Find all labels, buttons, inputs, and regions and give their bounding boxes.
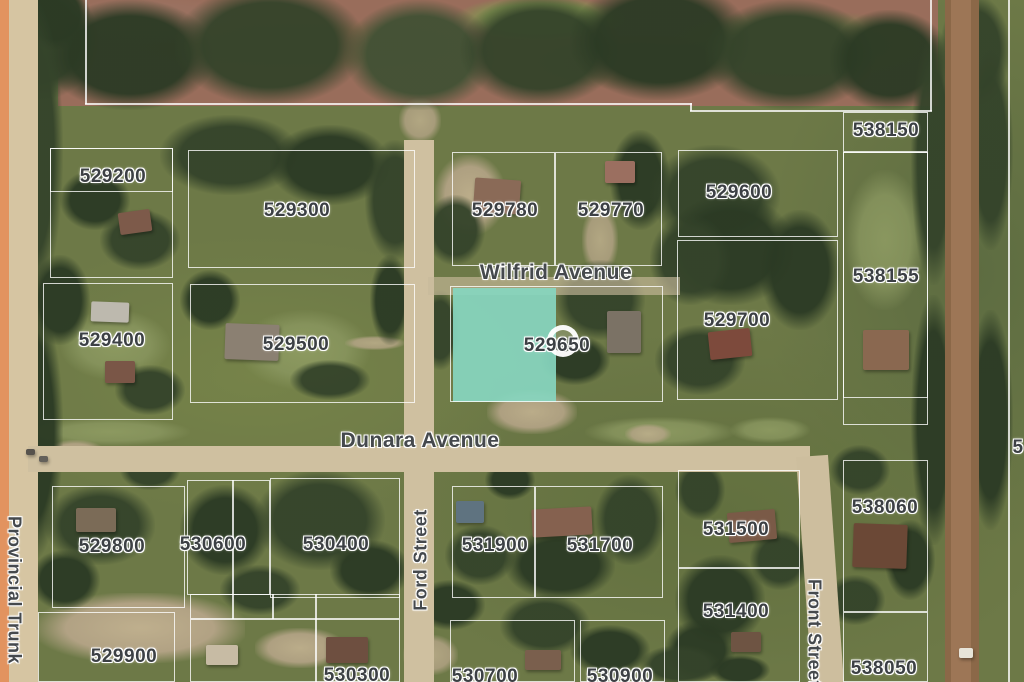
parcel-label[interactable]: 538060 [852, 497, 918, 519]
parcel-label[interactable]: 530300 [324, 665, 390, 682]
parcel-label[interactable]: 538155 [853, 266, 919, 288]
parcel-boundary-line [232, 594, 234, 619]
street-label-front-street: Front Street [804, 579, 825, 682]
building [39, 456, 48, 462]
parcel-label[interactable]: 531400 [703, 601, 769, 623]
parcel-label-selected[interactable]: 529650 [524, 335, 590, 357]
street-label-ford-street: Ford Street [411, 509, 432, 611]
parcel-label[interactable]: 529600 [706, 182, 772, 204]
parcel-label[interactable]: 529900 [91, 646, 157, 668]
street-label-provincial-trunk: Provincial Trunk [4, 516, 25, 664]
parcel-boundary [843, 460, 928, 612]
map-canvas[interactable]: 5292005293005297805297705296005381505381… [0, 0, 1024, 682]
parcel-label[interactable]: 530700 [452, 666, 518, 682]
parcel-boundary-line [85, 103, 692, 105]
building [26, 449, 35, 455]
parcel-boundary [678, 568, 800, 682]
parcel-label[interactable]: 530600 [180, 534, 246, 556]
parcel-label[interactable]: 530900 [587, 666, 653, 682]
parcel-label[interactable]: 529300 [264, 200, 330, 222]
parcel-label[interactable]: 529780 [472, 200, 538, 222]
parcel-boundary-line [1008, 0, 1010, 682]
parcel-boundary [190, 594, 400, 619]
parcel-label-partial[interactable]: 5 [1012, 437, 1023, 459]
parcel-label[interactable]: 529700 [704, 310, 770, 332]
parcel-label[interactable]: 531900 [462, 535, 528, 557]
parcel-label[interactable]: 529200 [80, 166, 146, 188]
parcel-boundary-line [272, 594, 274, 619]
farm-field [58, 0, 938, 106]
parcel-boundary-line [315, 594, 317, 682]
building [959, 648, 973, 658]
road-dirt-east-track [951, 0, 971, 682]
parcel-boundary-line [85, 0, 87, 104]
parcel-label[interactable]: 529400 [79, 330, 145, 352]
parcel-label[interactable]: 529500 [263, 334, 329, 356]
parcel-label[interactable]: 531700 [567, 535, 633, 557]
parcel-label[interactable]: 538050 [851, 658, 917, 680]
parcel-label[interactable]: 529770 [578, 200, 644, 222]
parcel-label[interactable]: 530400 [303, 534, 369, 556]
parcel-label[interactable]: 531500 [703, 519, 769, 541]
parcel-label[interactable]: 529800 [79, 536, 145, 558]
parcel-boundary-line [930, 0, 932, 111]
street-label-wilfrid-avenue: Wilfrid Avenue [480, 261, 632, 285]
parcel-label[interactable]: 538150 [853, 120, 919, 142]
street-label-dunara-avenue: Dunara Avenue [341, 429, 500, 453]
parcel-boundary-line [690, 110, 932, 112]
